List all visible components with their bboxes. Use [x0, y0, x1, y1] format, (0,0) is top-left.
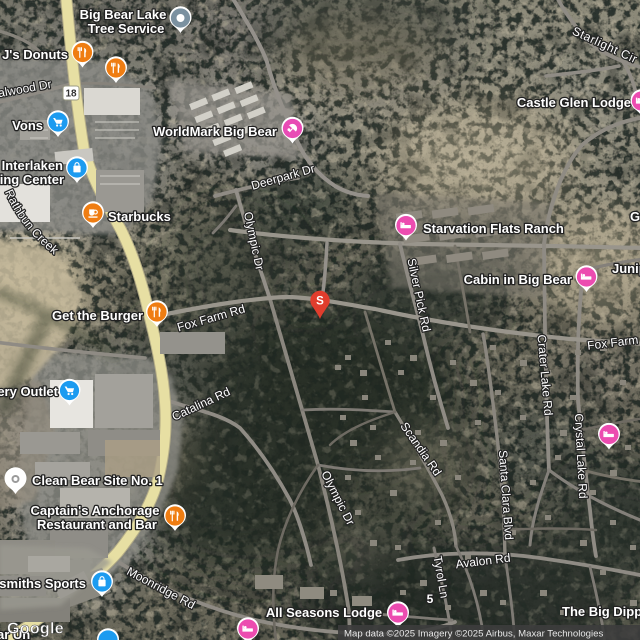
- svg-text:Starvation Flats Ranch: Starvation Flats Ranch: [423, 221, 564, 236]
- svg-text:Juniper: Juniper: [612, 261, 640, 276]
- svg-text:ery Outlet: ery Outlet: [0, 384, 59, 399]
- svg-text:WorldMark Big Bear: WorldMark Big Bear: [153, 124, 277, 139]
- svg-text:Gr: Gr: [630, 209, 640, 224]
- svg-text:S: S: [316, 296, 324, 308]
- svg-text:J's Donuts: J's Donuts: [2, 47, 68, 62]
- svg-text:Goldsmiths Sports: Goldsmiths Sports: [0, 576, 86, 591]
- svg-text:Big Bear Lake: Big Bear Lake: [80, 7, 167, 22]
- svg-text:Tree Service: Tree Service: [88, 21, 165, 36]
- svg-text:Clean Bear Site No. 1: Clean Bear Site No. 1: [32, 473, 163, 488]
- svg-text:Cabin in Big Bear: Cabin in Big Bear: [464, 272, 572, 287]
- svg-text:Castle Glen Lodge: Castle Glen Lodge: [517, 95, 631, 110]
- svg-text:Google: Google: [7, 621, 64, 638]
- svg-text:Restaurant and Bar: Restaurant and Bar: [37, 517, 157, 532]
- svg-text:Interlaken: Interlaken: [2, 158, 63, 173]
- svg-text:5: 5: [427, 592, 434, 606]
- svg-text:The Big Dipper: The Big Dipper: [562, 604, 640, 619]
- svg-text:All Seasons Lodge: All Seasons Lodge: [266, 605, 382, 620]
- svg-text:Vons: Vons: [12, 118, 43, 133]
- svg-text:Starbucks: Starbucks: [108, 209, 171, 224]
- svg-text:Shopping Center: Shopping Center: [0, 172, 64, 187]
- svg-text:Get the Burger: Get the Burger: [52, 308, 143, 323]
- svg-text:Captain's Anchorage: Captain's Anchorage: [30, 503, 159, 518]
- svg-text:18: 18: [65, 89, 77, 100]
- svg-text:Map data ©2025 Imagery ©2025 A: Map data ©2025 Imagery ©2025 Airbus, Max…: [344, 629, 603, 640]
